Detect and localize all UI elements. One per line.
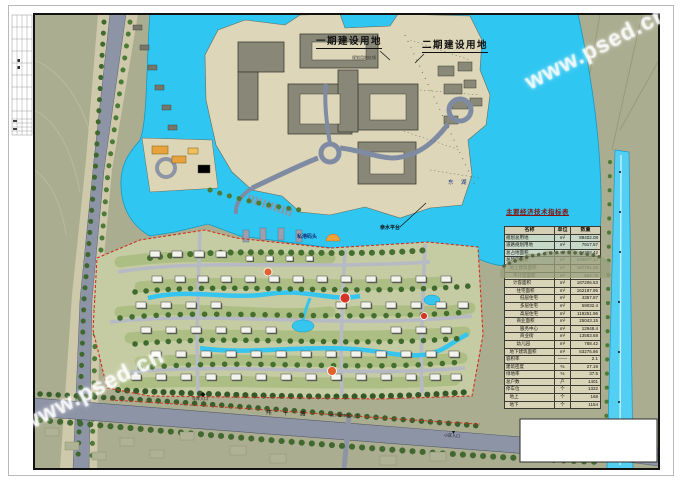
table-row: 停车位个1322 — [505, 386, 601, 394]
table-row: 建筑密度%27.19 — [505, 363, 601, 371]
table-row: 容积率——2.1 — [505, 356, 601, 364]
table-cell: 59032.4 — [571, 302, 601, 310]
table-cell: 个 — [555, 386, 571, 394]
table-row: 计容面积m²187206.53 — [505, 280, 601, 288]
col-header-name: 名称 — [505, 227, 555, 235]
table-cell: 25043.15 — [571, 318, 601, 326]
table-cell: 2.1 — [571, 356, 601, 364]
table-cell: 187206.53 — [571, 280, 601, 288]
table-cell: 1401 — [571, 378, 601, 386]
table-cell: 商业街 — [505, 333, 555, 341]
table-cell: 7917.57 — [571, 242, 601, 250]
table-cell: 37.5 — [571, 371, 601, 379]
table-cell: 建筑密度 — [505, 363, 555, 371]
table-cell: 多层住宅 — [505, 302, 555, 310]
table-cell: 总户数 — [505, 378, 555, 386]
table-cell: 地下 — [505, 401, 555, 409]
table-header-row: 名称 单位 数量 — [505, 227, 601, 235]
table-cell: 13583.68 — [571, 333, 601, 341]
table-row: 地下个1154 — [505, 401, 601, 409]
table-cell: 162187.95 — [571, 287, 601, 295]
table-row: 住宅面积m²162187.95 — [505, 287, 601, 295]
label-waterfront-deck: 亲水平台 — [380, 226, 400, 231]
indicators-table: 名称 单位 数量 规划总用地m²89402.08道路规划用地m²7917.57总… — [504, 226, 601, 409]
table-row: 地上建筑面积m²187701.28 — [505, 264, 601, 272]
table-row: 高层住宅m²119251.96 — [505, 310, 601, 318]
table-cell: m² — [555, 257, 571, 265]
table-cell: m² — [555, 348, 571, 356]
table-cell: 4357.87 — [571, 295, 601, 303]
table-cell: m² — [555, 264, 571, 272]
table-cell: 240977.14 — [571, 257, 601, 265]
table-cell: m² — [555, 333, 571, 341]
table-row: 商业街m²13583.68 — [505, 333, 601, 341]
table-cell: 1322 — [571, 386, 601, 394]
table-cell: m² — [555, 287, 571, 295]
label-private-dock: 私港码头 — [297, 235, 317, 240]
table-row: 总占地面积m²34308.42 — [505, 249, 601, 257]
table-cell: 89402.08 — [571, 234, 601, 242]
table-row: 商业面积m²25043.15 — [505, 318, 601, 326]
table-row: 多层住宅m²59032.4 — [505, 302, 601, 310]
table-cell: 总建筑面积 — [505, 257, 555, 265]
table-row: 幼儿园m²788.42 — [505, 340, 601, 348]
table-cell: 不计容面积 — [505, 272, 555, 280]
table-cell: m² — [555, 272, 571, 280]
table-cell: 788.42 — [571, 340, 601, 348]
label-phase1-land: 一期建设用地 — [316, 37, 382, 49]
table-cell: m² — [555, 242, 571, 250]
table-row: 总户数户1401 — [505, 378, 601, 386]
table-cell: 地上建筑面积 — [505, 264, 555, 272]
table-cell: 1154 — [571, 401, 601, 409]
table-cell: m² — [555, 340, 571, 348]
label-redline-note: 规划用地红线 — [352, 56, 376, 60]
table-row: 不计容面积m²562.78 — [505, 272, 601, 280]
col-header-unit: 单位 — [555, 227, 571, 235]
titleblock-strip — [12, 15, 32, 135]
table-row: 低层住宅m²4357.87 — [505, 295, 601, 303]
table-cell: m² — [555, 302, 571, 310]
table-cell: 容积率 — [505, 356, 555, 364]
table-cell: 住宅面积 — [505, 287, 555, 295]
table-cell: —— — [555, 356, 571, 364]
table-cell: 停车位 — [505, 386, 555, 394]
table-cell: 地下建筑面积 — [505, 348, 555, 356]
table-row: 总建筑面积m²240977.14 — [505, 257, 601, 265]
table-cell: 562.78 — [571, 272, 601, 280]
col-header-qty: 数量 — [571, 227, 601, 235]
table-cell: 户 — [555, 378, 571, 386]
table-cell: m² — [555, 325, 571, 333]
legend-box — [520, 419, 657, 462]
table-cell: 119251.96 — [571, 310, 601, 318]
table-cell: m² — [555, 295, 571, 303]
table-cell: % — [555, 363, 571, 371]
table-cell: 绿地率 — [505, 371, 555, 379]
table-row: 地上个168 — [505, 394, 601, 402]
table-cell: 个 — [555, 394, 571, 402]
table-cell: % — [555, 371, 571, 379]
table-cell: 规划总用地 — [505, 234, 555, 242]
table-cell: 低层住宅 — [505, 295, 555, 303]
drawing-page: 主要经济技术指标表 名称 单位 数量 规划总用地m²89402.08道路规划用地… — [0, 0, 680, 481]
table-row: 绿地率%37.5 — [505, 371, 601, 379]
table-row: 地下建筑面积m²53275.86 — [505, 348, 601, 356]
table-cell: m² — [555, 318, 571, 326]
table-row: 规划总用地m²89402.08 — [505, 234, 601, 242]
table-cell: 计容面积 — [505, 280, 555, 288]
table-cell: 幼儿园 — [505, 340, 555, 348]
table-row: 服务中心m²12948.4 — [505, 325, 601, 333]
table-cell: 道路规划用地 — [505, 242, 555, 250]
table-cell: 服务中心 — [505, 325, 555, 333]
table-cell: 187701.28 — [571, 264, 601, 272]
table-cell: m² — [555, 280, 571, 288]
label-lake-name: 东 湖 — [448, 181, 470, 187]
table-row: 道路规划用地m²7917.57 — [505, 242, 601, 250]
label-phase2-land: 二期建设用地 — [422, 41, 488, 53]
table-cell: 商业面积 — [505, 318, 555, 326]
table-cell: 总占地面积 — [505, 249, 555, 257]
table-cell: 53275.86 — [571, 348, 601, 356]
table-cell: 地上 — [505, 394, 555, 402]
indicators-table-title: 主要经济技术指标表 — [506, 206, 603, 216]
label-community-entry: 小区入口 — [444, 434, 460, 439]
table-cell: 168 — [571, 394, 601, 402]
table-cell: 34308.42 — [571, 249, 601, 257]
table-cell: 高层住宅 — [505, 310, 555, 318]
table-cell: m² — [555, 310, 571, 318]
indicators-rows: 规划总用地m²89402.08道路规划用地m²7917.57总占地面积m²343… — [505, 234, 601, 409]
table-cell: m² — [555, 234, 571, 242]
label-garage-entry: 车库入口 — [192, 397, 208, 401]
indicators-table-panel: 主要经济技术指标表 名称 单位 数量 规划总用地m²89402.08道路规划用地… — [504, 206, 603, 409]
table-cell: 个 — [555, 401, 571, 409]
table-cell: 27.19 — [571, 363, 601, 371]
table-cell: 12948.4 — [571, 325, 601, 333]
table-cell: m² — [555, 249, 571, 257]
